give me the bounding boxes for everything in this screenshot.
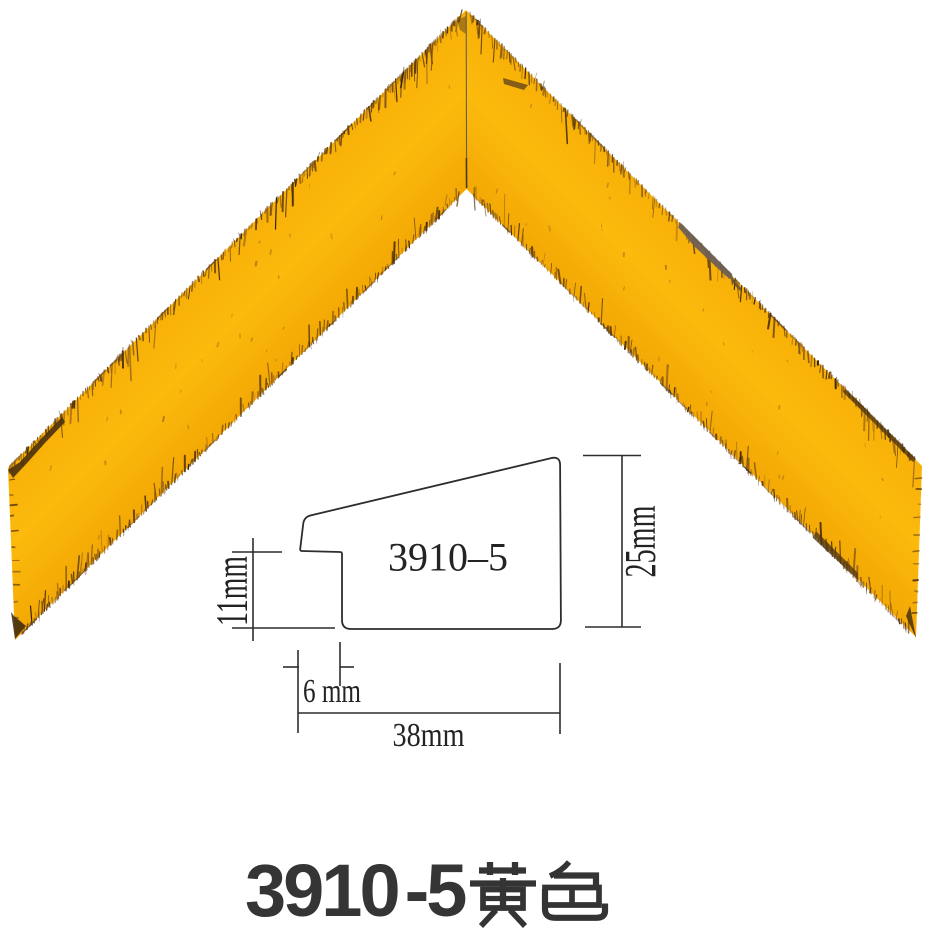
svg-text:25mm: 25mm: [616, 506, 665, 578]
svg-text:38mm: 38mm: [393, 717, 465, 754]
svg-text:3910-5: 3910-5: [245, 849, 466, 932]
svg-text:6 mm: 6 mm: [303, 673, 361, 710]
svg-text:3910–5: 3910–5: [388, 535, 508, 580]
svg-text:11mm: 11mm: [206, 556, 257, 626]
